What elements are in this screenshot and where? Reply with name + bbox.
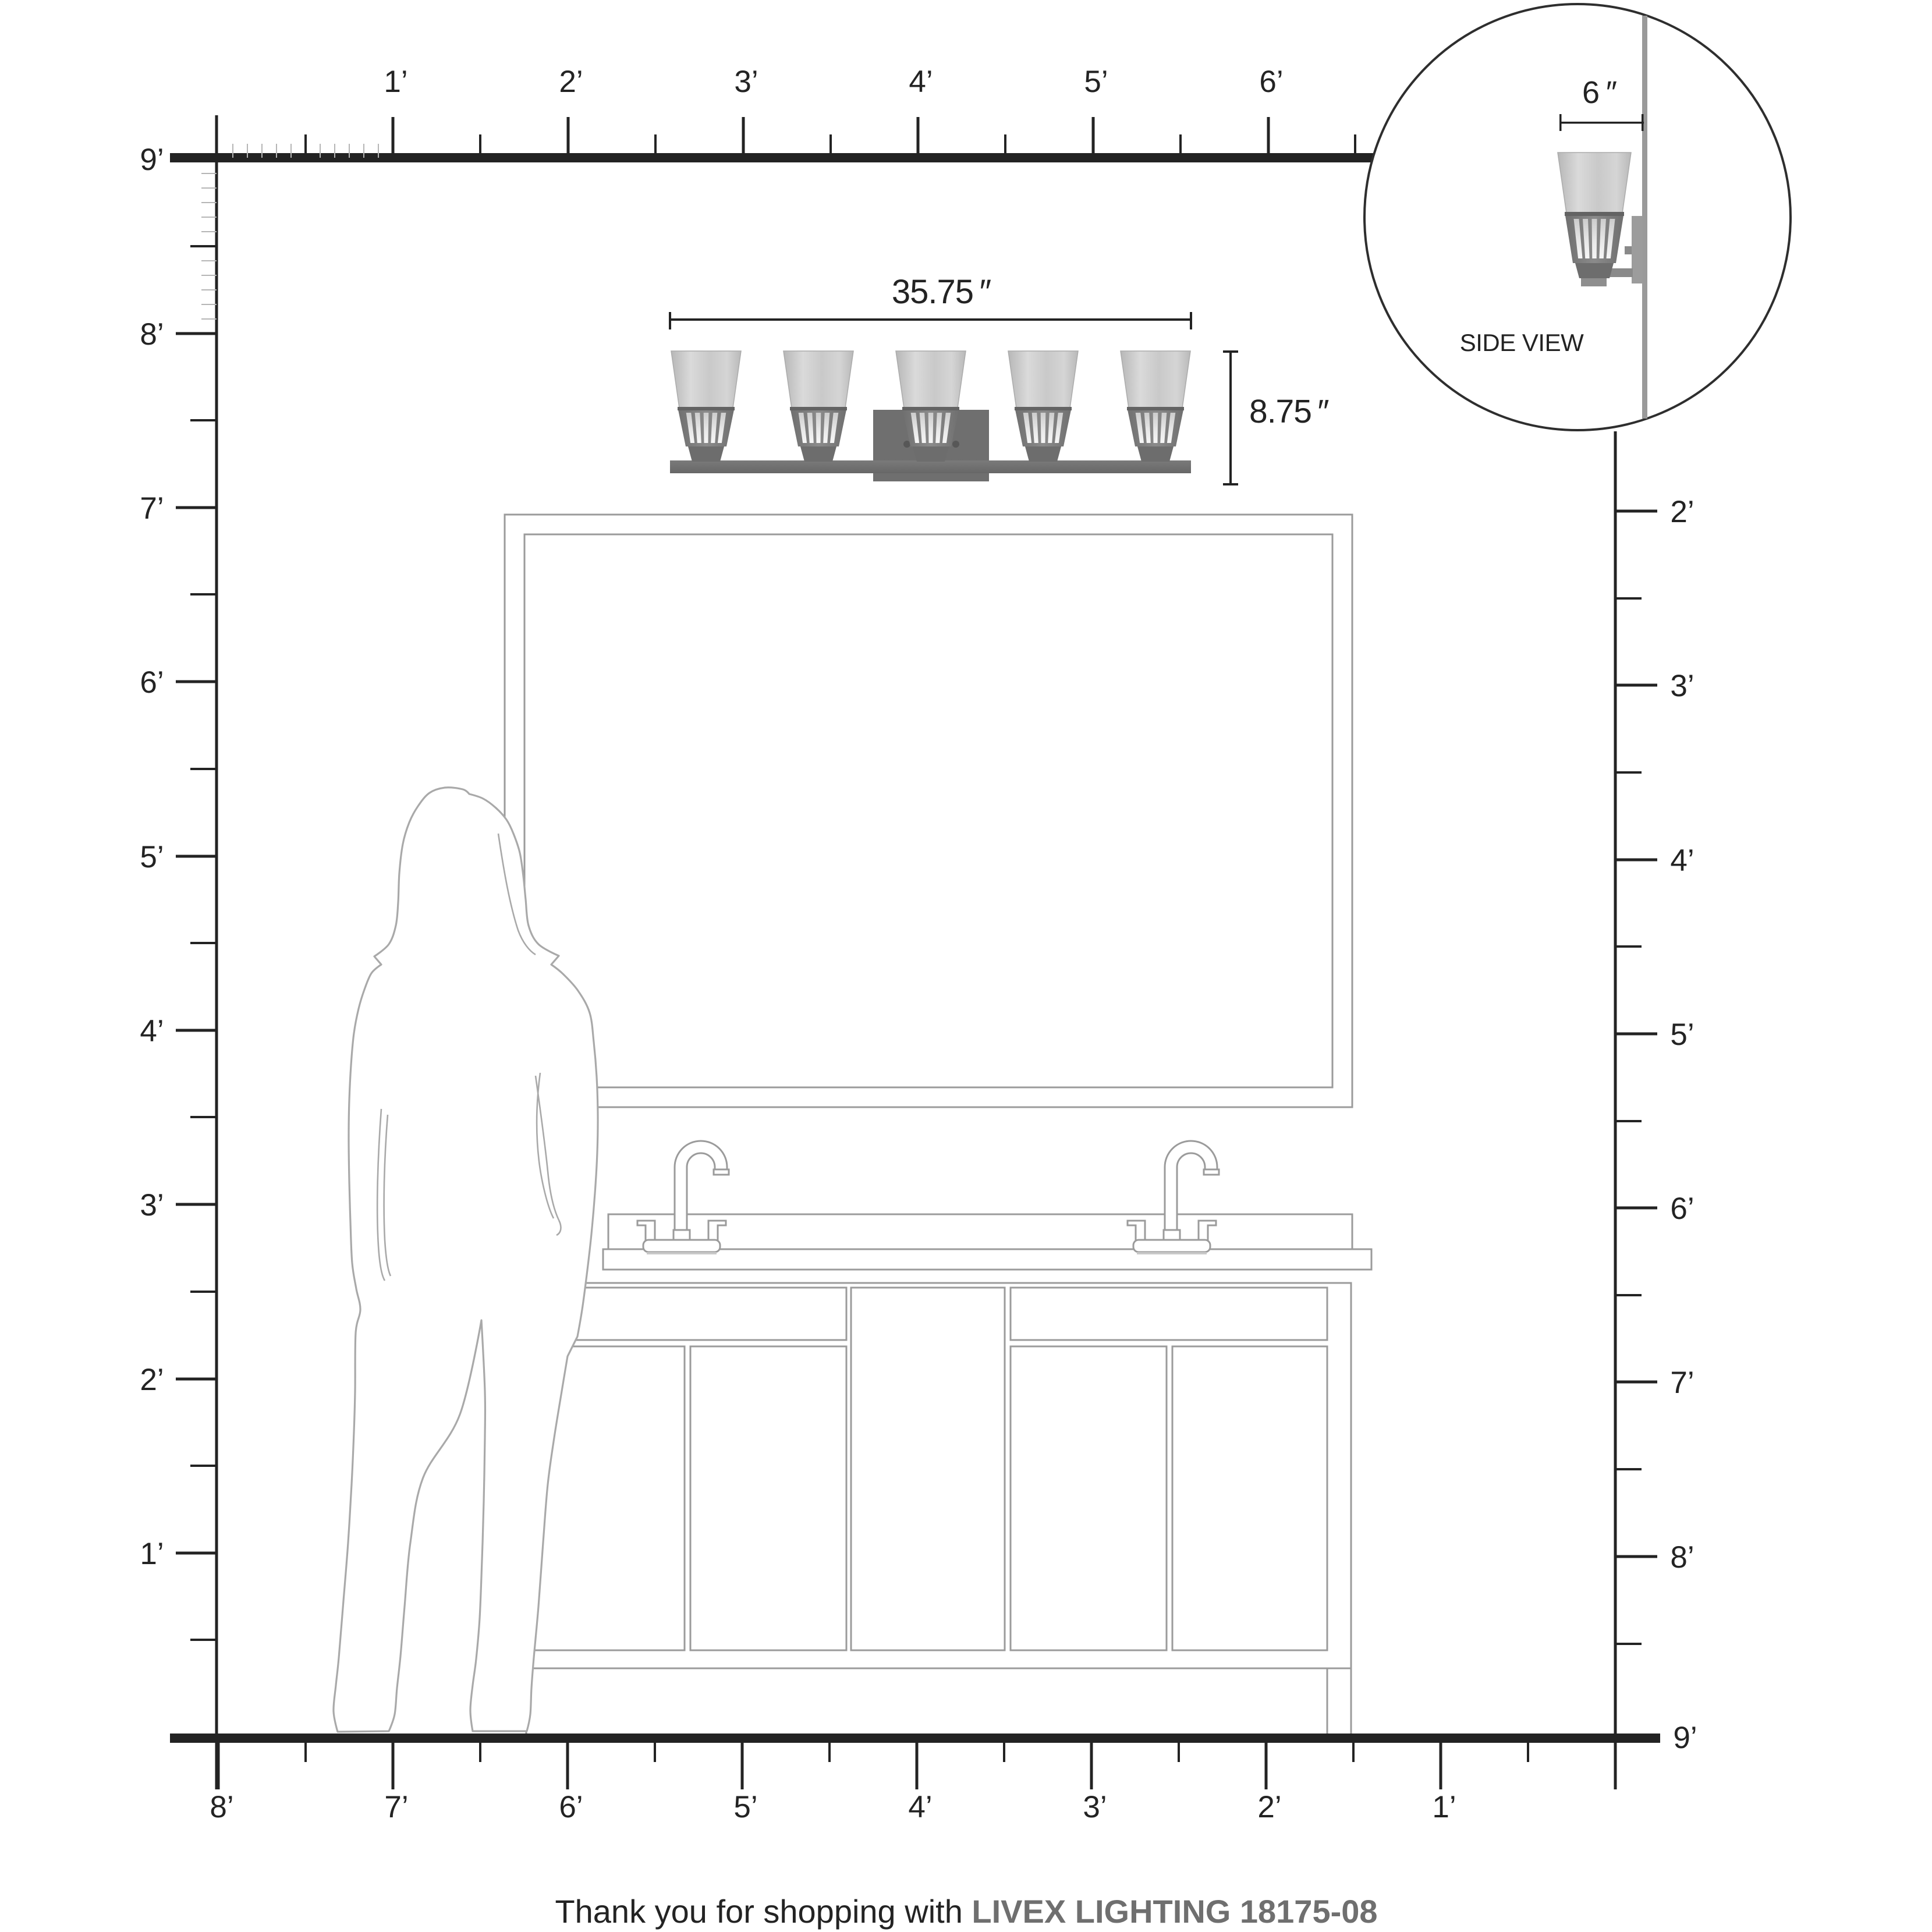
svg-text:8’: 8’	[140, 317, 164, 352]
svg-text:5’: 5’	[1670, 1018, 1694, 1052]
svg-text:4’: 4’	[1670, 843, 1694, 878]
svg-text:8.75 ″: 8.75 ″	[1249, 393, 1329, 430]
svg-text:2’: 2’	[140, 1363, 164, 1397]
svg-text:7’: 7’	[140, 491, 164, 526]
svg-text:2’: 2’	[1670, 495, 1694, 529]
svg-text:8’: 8’	[1670, 1540, 1694, 1575]
svg-text:6’: 6’	[559, 1790, 583, 1824]
svg-text:4’: 4’	[908, 1790, 932, 1824]
svg-text:9’: 9’	[1673, 1721, 1697, 1755]
svg-text:6’: 6’	[1670, 1192, 1694, 1226]
svg-text:6’: 6’	[140, 665, 164, 700]
svg-text:SIDE VIEW: SIDE VIEW	[1460, 329, 1584, 356]
svg-text:6 ″: 6 ″	[1582, 75, 1617, 110]
svg-text:2’: 2’	[1257, 1790, 1281, 1824]
svg-text:5’: 5’	[733, 1790, 757, 1824]
svg-text:35.75 ″: 35.75 ″	[892, 273, 991, 311]
svg-text:4’: 4’	[140, 1014, 164, 1048]
svg-text:6’: 6’	[1259, 65, 1283, 99]
svg-text:8’: 8’	[210, 1790, 233, 1824]
svg-text:2’: 2’	[559, 65, 583, 99]
svg-text:9’: 9’	[140, 143, 164, 177]
svg-text:1’: 1’	[140, 1537, 164, 1571]
svg-text:4’: 4’	[909, 65, 933, 99]
svg-text:5’: 5’	[1084, 65, 1108, 99]
svg-text:1’: 1’	[384, 65, 407, 99]
svg-text:Thank you for shopping with LI: Thank you for shopping with LIVEX LIGHTI…	[555, 1893, 1377, 1930]
svg-text:3’: 3’	[734, 65, 758, 99]
svg-text:7’: 7’	[384, 1790, 408, 1824]
svg-text:3’: 3’	[1670, 669, 1694, 703]
svg-text:3’: 3’	[1083, 1790, 1107, 1824]
svg-text:1’: 1’	[1432, 1790, 1456, 1824]
svg-text:5’: 5’	[140, 840, 164, 874]
svg-text:3’: 3’	[140, 1188, 164, 1222]
svg-text:7’: 7’	[1670, 1366, 1694, 1400]
